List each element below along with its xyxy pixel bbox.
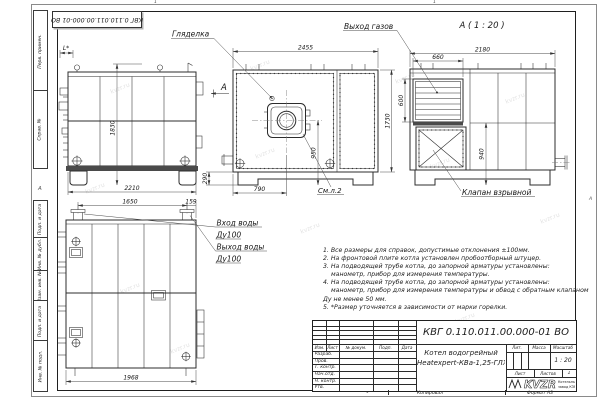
- dim-base-height: 290: [202, 173, 209, 185]
- dim-burner-length: L*: [63, 45, 69, 52]
- titleblock-line: [506, 352, 576, 353]
- col-list: Лист: [326, 345, 339, 350]
- title-block: Изм. Лист № докум. Подп. Дата Разраб. Пр…: [312, 320, 577, 392]
- dim-louver-height: 600: [398, 95, 405, 107]
- row-tkontr: Т. контр.: [315, 365, 339, 370]
- footer-copied-label: Копировал: [400, 391, 460, 396]
- footer-format-label: Формат А3: [510, 391, 570, 396]
- company-logo: KVZR Котельный завод КЗР: [507, 378, 575, 390]
- col-doc: № докум.: [339, 345, 373, 350]
- dim-burner-center-height: 950: [311, 147, 318, 159]
- titleblock-line: [313, 326, 416, 327]
- mass-label: Масса: [528, 345, 550, 350]
- titleblock-line: [313, 335, 416, 336]
- dim-burner-offset: 790: [254, 186, 266, 193]
- view-a-title: А ( 1 : 20 ): [458, 21, 504, 31]
- dim-louver-width: 660: [432, 54, 444, 61]
- lifting-lug-icon: [71, 237, 81, 247]
- view-side-bottom: 1650 159 1968 Вход воды Ду100 Выход воды…: [58, 199, 267, 386]
- row-utv: Утв.: [315, 385, 339, 390]
- row-razrab: Разраб.: [315, 352, 339, 357]
- lit-label: Лит.: [506, 345, 528, 350]
- view-side-left: 2210 1830 L* А: [59, 45, 229, 195]
- dim-side-width: 2210: [124, 185, 139, 192]
- water-outlet-dn-label: Ду100: [216, 255, 242, 264]
- note-line: манометр, прибор для измерения температу…: [323, 287, 585, 295]
- dim-rear-view-width: 1968: [123, 375, 138, 382]
- lifting-lug-icon: [72, 156, 83, 167]
- lifting-lug-icon: [181, 352, 191, 362]
- sheets-label: Листов: [534, 371, 562, 376]
- sheet-label: Лист: [506, 371, 534, 376]
- row-nkontr: Н. контр.: [315, 379, 339, 384]
- col-podp: Подп.: [373, 345, 398, 350]
- section-arrow-label: А: [220, 83, 227, 93]
- explosion-valve-label: Клапан взрывной: [462, 188, 532, 197]
- titleblock-line: [339, 321, 340, 391]
- dim-lower-height: 940: [479, 148, 486, 160]
- row-nachotd: Нач.отд.: [315, 372, 339, 377]
- note-line: 5. *Размер уточняется в зависимости от м…: [323, 304, 585, 312]
- document-designation: КВГ 0.110.011.00.000-01 ВО: [417, 323, 575, 343]
- titleblock-line: [373, 321, 374, 391]
- water-outlet-label: Выход воды: [217, 243, 265, 252]
- dim-front-width: 2455: [298, 45, 313, 52]
- water-inlet-label: Вход воды: [217, 219, 259, 228]
- dim-pipe-pitch: 1650: [122, 199, 137, 206]
- dim-rear-width: 2180: [475, 47, 490, 54]
- spring-icon: [509, 380, 521, 388]
- note-line: Ду не менее 50 мм.: [323, 296, 585, 304]
- explosion-valve-panel: [416, 127, 466, 170]
- dim-front-height: 1730: [385, 113, 392, 128]
- view-a-rear: 2180 660 600 940 Выход газов А ( 1 : 20 …: [343, 21, 571, 197]
- titleblock-line: [398, 321, 399, 391]
- see-sheet-label: См.л.2: [318, 187, 342, 195]
- gas-outlet-label: Выход газов: [344, 22, 393, 31]
- lifting-lug-icon: [180, 156, 191, 167]
- dim-pipe-edge: 159: [185, 199, 197, 206]
- company-name-line2: завод КЗР: [558, 385, 575, 389]
- note-line: 1. Все размеры для справок, допустимые о…: [323, 247, 585, 255]
- logo-text: KVZR: [524, 379, 556, 390]
- note-line: 2. На фронтовой плите котла установлен п…: [323, 255, 585, 263]
- scale-value: 1 : 20: [551, 354, 575, 367]
- titleblock-line: [313, 330, 416, 331]
- row-prov: Пров.: [315, 359, 339, 364]
- footer-divider: [505, 390, 506, 395]
- gas-outlet-louver: [413, 79, 463, 126]
- product-name-line2: Heatexpert-КВа-1,25-ГЛЖ: [417, 359, 505, 367]
- titleblock-line: [313, 339, 416, 340]
- lifting-lug-icon: [71, 338, 81, 348]
- col-data: Дата: [398, 345, 416, 350]
- sight-glass-label: Гляделка: [172, 30, 210, 39]
- technical-notes: 1. Все размеры для справок, допустимые о…: [323, 247, 585, 312]
- col-izm: Изм.: [313, 345, 326, 350]
- titleblock-line: [513, 352, 514, 369]
- scale-label: Масштаб: [550, 345, 576, 350]
- footer-divider: [388, 390, 389, 395]
- product-name-line1: Котел водогрейный: [417, 349, 505, 357]
- titleblock-line: [521, 352, 522, 369]
- drawing-sheet: kvzr.ru kvzr.ru kvzr.ru kvzr.ru kvzr.ru …: [0, 0, 600, 400]
- dim-side-height: 1830: [110, 120, 117, 135]
- water-inlet-dn-label: Ду100: [216, 231, 242, 240]
- view-front: 2455 1730 950 790 290 См.л.2 Гляделка: [171, 30, 395, 197]
- sheets-value: 1: [562, 371, 576, 376]
- company-name-line1: Котельный: [558, 380, 575, 384]
